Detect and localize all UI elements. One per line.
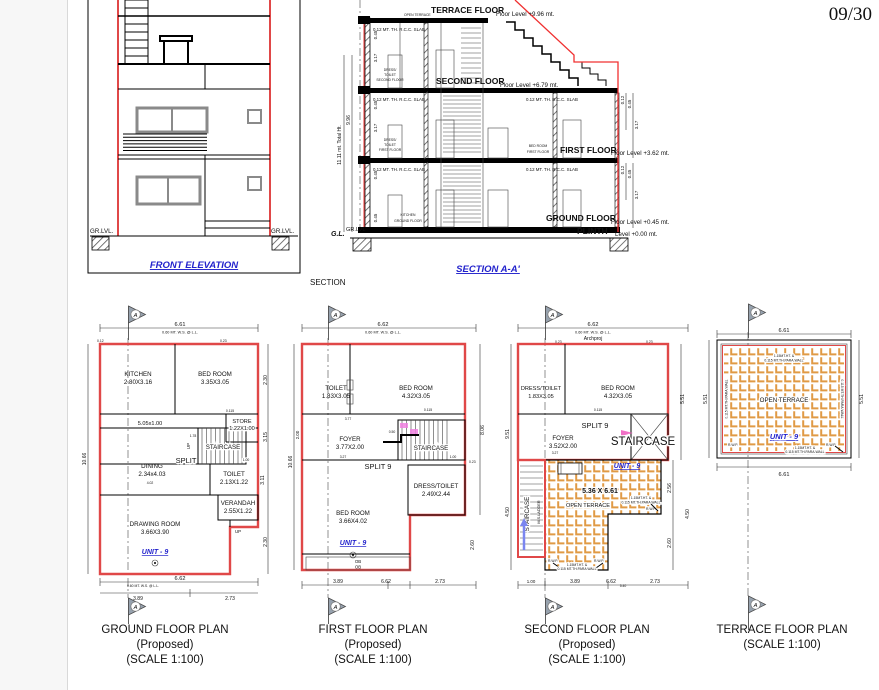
dim-050: 0.50: [389, 430, 396, 434]
elevation-building: [90, 0, 298, 236]
dim-045-plinth: 0.45: [373, 213, 378, 222]
page-number: 09/30: [812, 4, 872, 26]
section-floor-labels: TERRACE FLOOR Floor Level +9.96 mt. OPEN…: [373, 5, 670, 238]
ground-floor-plan-title: GROUND FLOOR PLAN (Proposed) (SCALE 1:10…: [80, 623, 250, 668]
bedroom2-size: 3.66X4.02: [339, 518, 368, 525]
dress-label: DRESS/TOILET: [521, 386, 562, 392]
total-height-label: 11.11 mt. Total Ht.: [337, 125, 343, 165]
flag-marker-top: [546, 306, 563, 340]
dim-023: 0.23: [469, 460, 476, 464]
scale-line: (SCALE 1:100): [500, 653, 674, 668]
para-label-b2: 0.115 MT.TH.PARA WALL: [558, 567, 597, 571]
bedroom2-label: BED ROOM: [336, 510, 370, 517]
section-title: SECTION A-A': [456, 264, 520, 275]
terrace-floor-label: TERRACE FLOOR: [431, 5, 504, 15]
dining-label: DINING: [141, 463, 163, 470]
first-floor-plan-title: FIRST FLOOR PLAN (Proposed) (SCALE 1:100…: [288, 623, 458, 668]
staircase-label: STAIRCASE: [414, 445, 449, 452]
verandah-label: VERANDAH: [221, 500, 255, 507]
dim-top: 6.62: [378, 322, 389, 328]
dim-r2: 3.15: [263, 432, 269, 442]
rwp-label-bl: R.W.P.: [548, 559, 558, 563]
terrace-floor-plan-title: TERRACE FLOOR PLAN (SCALE 1:100): [695, 623, 869, 653]
front-elevation-drawing: GR.LVL. GR.LVL. FRONT ELEVATION: [78, 0, 323, 292]
section-dimension-left: 11.11 mt. Total Ht. 9.96: [337, 0, 360, 235]
passage-size: 5.05x1.00: [138, 421, 163, 427]
ob-label-2: OB: [355, 565, 361, 570]
toilet-label: TOILET: [223, 471, 245, 478]
bedroom-size: 3.35X3.05: [201, 379, 230, 386]
dim-r3: 3.11: [260, 475, 266, 485]
section-stair-profile: [506, 0, 618, 232]
dim-115: 0.115: [594, 408, 602, 412]
room-labels: KITCHEN 2.80X3.16 BED ROOM 3.35X3.05 5.0…: [124, 371, 255, 566]
para-label-r: 0.115 MT.TH.PARA.WALL: [840, 379, 844, 418]
up-label: UP: [186, 443, 191, 449]
dim-023: 0.23: [220, 339, 227, 343]
gr-lvl-right-label: GR.LVL.: [271, 228, 295, 235]
subtitle-line: (Proposed): [80, 638, 250, 653]
verandah-size: 2.55X1.22: [224, 508, 253, 515]
toilet-label: TOILET: [325, 385, 347, 392]
dress2-l2: TOILET: [384, 73, 396, 77]
gl-label: G.L.: [331, 231, 345, 238]
section-drawing: 11.11 mt. Total Ht. 9.96: [328, 0, 673, 298]
section-structure: [350, 16, 628, 238]
top-dimension: 6.61: [717, 328, 851, 338]
flag-marker-top: [749, 304, 766, 338]
bedroom1-label: BED ROOM: [399, 385, 433, 392]
second-floor-plan-drawing: 6.62 0.60 MT. W.S. @ L.L. Archproj 0.23 …: [503, 302, 715, 624]
foyer-label: FOYER: [339, 436, 361, 443]
front-elevation-title: FRONT ELEVATION: [150, 260, 239, 271]
store-label: STORE: [232, 419, 251, 425]
dim-317: 3.17: [634, 120, 639, 129]
walls: [302, 344, 465, 570]
footing-hatch-left: [92, 237, 109, 250]
dim-r1: 2.30: [263, 375, 269, 385]
top-dimension: 6.61 0.60 MT. W.S. @ L.L. 0.12 0.23: [97, 322, 258, 343]
dim-100: 1.00: [243, 458, 250, 462]
first-floor-small-window: [248, 177, 261, 190]
slab-label-4: 0.12 MT. TH. R.C.C. SLAB: [373, 167, 425, 172]
dim-bottom: 6.61: [779, 472, 790, 478]
unit-label: UNIT - 9: [614, 463, 641, 470]
dim-327: 3.27: [552, 451, 559, 455]
room-labels: TOILET 1.83X3.05 BED ROOM 4.32X3.05 FOYE…: [322, 385, 459, 570]
terrace-area: STAIRCASE M.S.LADDER UNIT - 9 5.36 X 6.6…: [518, 460, 661, 571]
foyer-size: 3.52X2.00: [549, 443, 578, 450]
ground-floor-label: GROUND FLOOR: [546, 213, 616, 223]
section-dims-inner-left: 0.45 3.17 0.45 3.17 0.45 0.45: [373, 30, 378, 222]
dim-top: 6.62: [588, 322, 599, 328]
open-terrace-label: OPEN TERRACE: [566, 503, 610, 509]
dim-bottom: 6.62: [606, 579, 616, 585]
ms-ladder-label: M.S.LADDER: [537, 500, 541, 523]
terrace-door: [164, 41, 188, 64]
dim-r4: 2.30: [263, 537, 269, 547]
bedroom-size: 4.32X3.05: [604, 393, 633, 400]
dress-size: 1.83X3.05: [528, 394, 554, 400]
footing-hatch-right: [272, 237, 289, 250]
wall-note: 0.60 MT. W.S. @ L.L.: [365, 331, 401, 335]
dim-top: 6.61: [175, 322, 186, 328]
blueprint-page: 09/30 A: [0, 0, 879, 690]
rwp-label-l: R.W.P.: [728, 443, 738, 447]
slab-label-1: 0.12 MT. TH. R.C.C. SLAB: [373, 27, 425, 32]
page-left-margin-strip: [0, 0, 68, 690]
plinth-level-label: Level +0.00 mt.: [615, 231, 658, 238]
split-label: SPLIT: [176, 456, 197, 465]
para-label-2: 0.115 MT.TH.PARA WALL: [622, 501, 661, 505]
kitchen-gf-l1: KITCHEN: [401, 213, 416, 217]
dim-r4: 2.60: [667, 538, 673, 548]
dim-178: 1.78: [190, 434, 197, 438]
rwp-label-br: R.W.P.: [594, 559, 604, 563]
dim-r1: 5.51: [680, 394, 686, 404]
dim-left: 5.51: [703, 394, 709, 404]
dim-317b: 3.17: [634, 190, 639, 199]
dim-bottom: 6.62: [381, 579, 391, 585]
bedroom1f-l2: FIRST FLOOR: [527, 150, 550, 154]
grlvl-label: GR.LVL: [346, 227, 365, 233]
scale-line: (SCALE 1:100): [695, 638, 869, 653]
dim-top: 6.61: [779, 328, 790, 334]
ob-label-1: OB: [355, 559, 361, 564]
ground-floor-plan-drawing: 6.61 0.60 MT. W.S. @ L.L. 0.12 0.23 KITC…: [80, 302, 285, 624]
dress1-l1: DRESS/: [384, 138, 397, 142]
dim-left: 10.66: [288, 456, 294, 469]
para-label-b2: 0.115 MT.TH.PARA.WALL: [785, 450, 824, 454]
dim-012: 0.12: [97, 339, 104, 343]
dim-bottom: 6.62: [175, 576, 186, 582]
second-floor-plan-title: SECOND FLOOR PLAN (Proposed) (SCALE 1:10…: [500, 623, 674, 668]
slab-label-2: 0.12 MT. TH. R.C.C. SLAB: [373, 97, 425, 102]
flag-marker-bottom: [129, 598, 146, 624]
flag-marker-bottom: [329, 598, 346, 624]
bedroom-label: BED ROOM: [601, 385, 635, 392]
para-label-t2: 0.115 MT.TH.PARA.WALL: [764, 359, 803, 363]
dim-317-s1: 3.17: [373, 123, 378, 132]
first-level-label: Floor Level +3.62 mt.: [611, 150, 670, 157]
room-labels-upper: DRESS/TOILET 1.83X3.05 BED ROOM 4.32X3.0…: [521, 385, 676, 455]
up-label-2: UP: [235, 529, 241, 534]
wall-note: 0.60 MT. W.S. @ L.L.: [575, 331, 611, 335]
dim-100: 1.00: [450, 455, 457, 459]
kitchen-gf-l2: GROUND FLOOR: [394, 219, 422, 223]
dim-b2: 2.73: [650, 579, 660, 585]
scale-line: (SCALE 1:100): [288, 653, 458, 668]
dress2-l3: SECOND FLOOR: [376, 78, 404, 82]
foyer-size: 3.77X2.00: [336, 444, 365, 451]
ground-level-label: Floor Level +0.45 mt.: [611, 219, 670, 226]
section-dimension-right: 0.12 0.45 3.17 0.12 0.45 3.17: [620, 93, 639, 228]
slab-label-3: 0.12 MT. TH. R.C.C. SLAB: [526, 97, 578, 102]
section-stair-treads: [443, 28, 481, 222]
dim-045b: 0.45: [627, 169, 632, 178]
scale-line: (SCALE 1:100): [80, 653, 250, 668]
subtitle-line: (Proposed): [500, 638, 674, 653]
bottom-dimension: 6.61: [717, 463, 851, 478]
drawing-room-label: DRAWING ROOM: [130, 521, 181, 528]
dining-size: 2.34x4.03: [138, 471, 166, 478]
dim-377: 3.77: [345, 417, 352, 421]
flag-marker-top: [329, 306, 346, 340]
dim-right: 8.06: [480, 425, 486, 435]
title-line: SECOND FLOOR PLAN: [500, 623, 674, 638]
kitchen-label: KITCHEN: [124, 371, 151, 378]
dim-200: 2.00: [295, 430, 300, 439]
split-label: SPLIT 9: [365, 462, 392, 471]
bedroom1f-l1: BED ROOM: [529, 144, 548, 148]
dim-012: 0.12: [620, 95, 625, 104]
elevation-ground-level: GR.LVL. GR.LVL.: [90, 228, 295, 250]
terrace-size-label: 5.36 X 6.61: [582, 488, 618, 495]
dim-r2: 2.56: [667, 483, 673, 493]
flag-marker-bottom: [546, 598, 563, 624]
dim-b1: 3.89: [333, 579, 343, 585]
terrace-floor-plan-drawing: 6.61 1.15MT.HT. & 0.115 MT.TH.PARA.WALL …: [703, 302, 879, 632]
staircase-label: STAIRCASE: [206, 444, 241, 451]
store-size: 1.22X1.00: [229, 426, 255, 432]
dim-b1: 3.89: [570, 579, 580, 585]
dim-012b: 0.12: [620, 165, 625, 174]
drawing-room-size: 3.66X3.90: [141, 529, 170, 536]
dim-left: 10.66: [82, 453, 88, 466]
second-floor-small-window: [248, 110, 261, 123]
dim-260: 2.60: [470, 540, 476, 550]
wall-note: 0.60 MT. W.S. @ L.L.: [162, 331, 198, 335]
open-terrace-label: OPEN TERRACE: [404, 13, 431, 17]
terrace-level-label: Floor Level +9.96 mt.: [496, 11, 555, 18]
first-floor-plan-drawing: 6.62 0.60 MT. W.S. @ L.L. TOILET 1.83X3.…: [288, 302, 495, 624]
bottom-dimensions: 6.62 0.60 MT. W.S. @ L.L. 3.89 2.73: [100, 576, 258, 602]
dress-label: DRESS/TOILET: [414, 483, 459, 490]
kitchen-size: 2.80X3.16: [124, 379, 153, 386]
dim-540: 5.40: [620, 584, 627, 588]
dim-115: 0.115: [424, 408, 432, 412]
dim-r3: 4.50: [685, 509, 691, 519]
para-label-l: 0.115 MT.TH.PARA.WALL: [725, 379, 729, 418]
bedroom-label: BED ROOM: [198, 371, 232, 378]
dim-b0: 1.00: [527, 579, 536, 584]
unit-label: UNIT - 9: [770, 432, 799, 441]
dress2-l1: DRESS/: [384, 68, 397, 72]
dress-size: 2.49X2.44: [422, 491, 451, 498]
gr-lvl-left-label: GR.LVL.: [90, 228, 114, 235]
para-label-t1: 1.15MT.HT. &: [774, 354, 795, 358]
title-line: GROUND FLOOR PLAN: [80, 623, 250, 638]
toilet-size: 2.13X1.22: [220, 479, 249, 486]
wall-note-bottom: 0.60 MT. W.S. @ L.L.: [127, 584, 159, 588]
dress1-l2: TOILET: [384, 143, 396, 147]
subtitle-line: (Proposed): [288, 638, 458, 653]
dim-l2: 4.50: [505, 507, 511, 517]
foyer-label: FOYER: [552, 435, 574, 442]
slab-label-5: 0.12 MT. TH. R.C.C. SLAB: [526, 167, 578, 172]
dim-b2: 2.73: [435, 579, 445, 585]
split-label: SPLIT 9: [582, 421, 609, 430]
dim-045: 0.45: [627, 99, 632, 108]
toilet-size: 1.83X3.05: [322, 393, 351, 400]
terrace-body: 1.15MT.HT. & 0.115 MT.TH.PARA.WALL 0.115…: [717, 340, 851, 458]
dim-l1: 9.51: [505, 429, 511, 439]
title-line: FIRST FLOOR PLAN: [288, 623, 458, 638]
unit-label: UNIT - 9: [340, 540, 367, 547]
elevation-frame: [88, 0, 300, 273]
dress1-l3: FIRST FLOOR: [379, 148, 402, 152]
flag-marker-top: [129, 306, 146, 340]
second-level-label: Floor Level +6.79 mt.: [500, 82, 559, 89]
unit-label: UNIT - 9: [142, 549, 169, 556]
para-label-1: 1.15MT.HT. &: [631, 496, 652, 500]
title-line: TERRACE FLOOR PLAN: [695, 623, 869, 638]
height-996-label: 9.96: [346, 115, 352, 125]
water-tank: [558, 463, 582, 474]
second-floor-label: SECOND FLOOR: [436, 76, 504, 86]
dim-317-s2: 3.17: [373, 53, 378, 62]
bottom-dimensions: 1.00 3.89 6.62 5.40 2.73: [518, 579, 688, 589]
footing-hatch-left: [353, 238, 371, 251]
top-dimension: 6.62 0.60 MT. W.S. @ L.L. Archproj 0.23 …: [518, 322, 688, 344]
dim-115: 0.115: [226, 409, 234, 413]
dim-b2: 2.73: [225, 596, 235, 602]
plinth-label: PLINTH: [577, 226, 608, 236]
open-terrace-label: OPEN TERRACE: [760, 397, 809, 404]
dim-right: 5.51: [859, 394, 865, 404]
watermark: Archproj: [584, 336, 603, 342]
first-floor-label: FIRST FLOOR: [560, 145, 617, 155]
footing-hatch-right: [610, 238, 628, 251]
dim-327: 3.27: [340, 455, 347, 459]
dim-402: 4.02: [147, 481, 154, 485]
staircase-label: STAIRCASE: [611, 436, 676, 448]
bedroom1-size: 4.32X3.05: [402, 393, 431, 400]
